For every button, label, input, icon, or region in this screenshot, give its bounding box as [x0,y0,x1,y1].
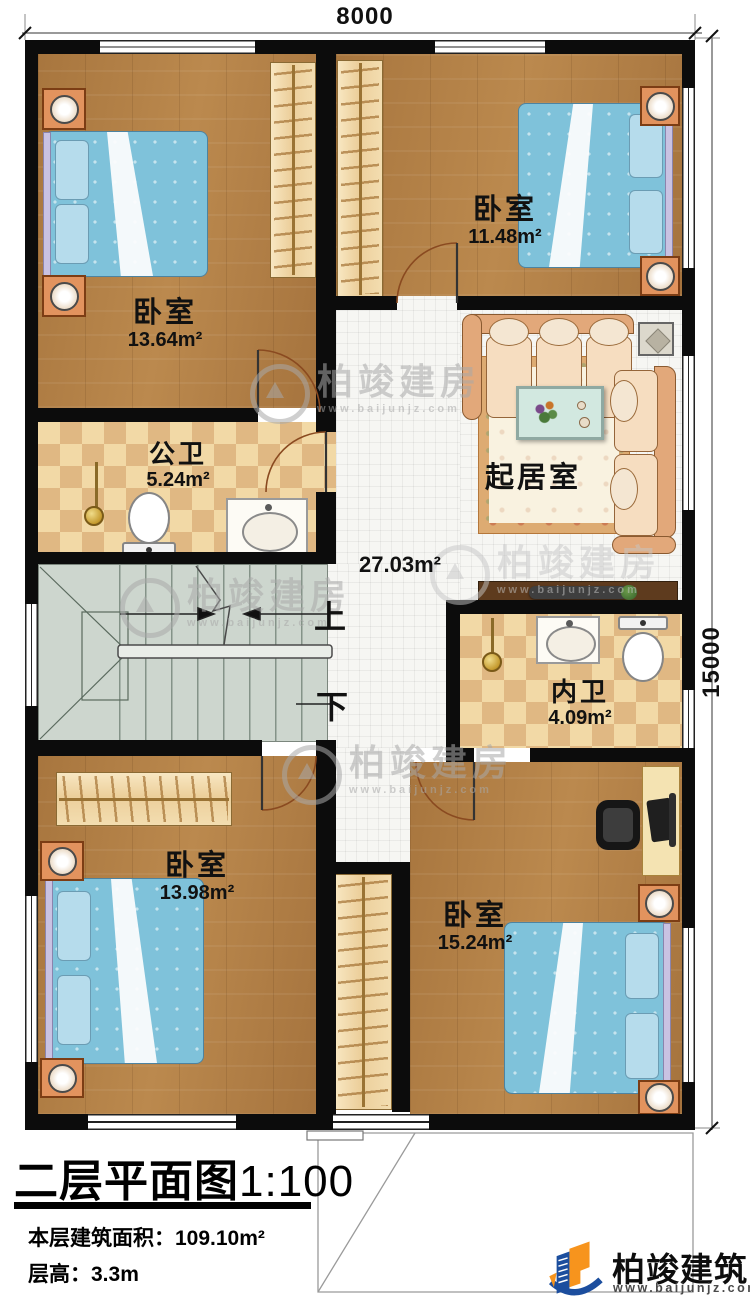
floor-height-label: 层高： [28,1263,91,1286]
nightstand [40,1058,84,1098]
floor-drain-icon [482,652,502,672]
floor-area-value: 109.10m² [175,1227,265,1250]
nightstand [42,88,86,130]
room-label-inner-bathroom: 内卫 4.09m² [490,678,670,730]
cup-icon [579,417,590,428]
lamp-icon [646,92,675,121]
logo-building-orange [569,1241,589,1287]
room-name: 卧室 [75,297,255,329]
window [682,690,695,748]
plan-scale: 1:100 [239,1157,354,1207]
room-label-living-room: 起居室 [443,462,623,494]
bed-headboard [665,104,673,269]
room-area: 13.98m² [107,882,287,904]
window [682,928,695,1082]
nightstand [640,86,680,126]
room-area-living-room: 27.03m² [320,553,480,578]
nightstand [640,256,680,296]
window [333,1114,429,1130]
room-area: 13.64m² [75,329,255,351]
cup-icon [577,401,586,410]
dimension-right: 15000 [698,602,726,722]
wardrobe-top-middle [337,60,383,298]
room-label-public-bathroom: 公卫 5.24m² [88,440,268,492]
bathroom-sink-counter [226,498,308,556]
window [25,604,38,706]
desk-lamp-icon [669,793,676,847]
room-area: 11.48m² [415,226,595,248]
toilet [128,492,170,544]
bathroom-sink-counter [536,616,600,664]
wall-interior [38,408,258,422]
floor-hallway-lower [334,748,410,874]
bed-pillow [57,975,91,1045]
wardrobe-bottom-middle [334,874,392,1110]
wall-interior [336,296,397,310]
sofa-back-pillow [589,318,629,346]
bed-headboard [43,132,51,278]
sofa2-armrest [612,536,676,554]
lamp-icon [48,1064,77,1093]
corner-side-table [638,322,674,356]
wall-interior [460,600,682,614]
wardrobe-bottom-left [56,772,232,826]
wall-interior [446,748,474,762]
room-name: 内卫 [490,678,670,707]
wall-interior [38,740,262,756]
window-sill-mark [307,1131,363,1140]
room-name: 卧室 [385,900,565,932]
room-name: 卧室 [415,194,595,226]
room-area: 27.03m² [320,553,480,578]
wardrobe-top-left [270,62,316,278]
table-inlay [645,328,670,353]
title-block: 二层平面图 1:100 [14,1145,354,1209]
wall-interior [320,408,336,422]
window [435,40,545,54]
bed-headboard [45,879,53,1065]
faucet-icon [566,620,573,627]
wall-interior [38,552,336,564]
nightstand [638,884,680,922]
stair-down-label: 下 [316,682,348,728]
tv-cabinet [478,581,678,602]
tv-icon [529,586,629,599]
bed-pillow [55,204,89,264]
stair-up-label: 上 [314,592,346,638]
bed-sheet [111,879,157,1063]
room-label-bedroom-top-left: 卧室 13.64m² [75,297,255,352]
plan-title: 二层平面图 [14,1145,239,1209]
table-plant-icon [531,397,561,427]
bed-top-left [44,131,208,277]
stair-treads [119,565,327,741]
sofa-back-pillow [539,318,579,346]
window [682,356,695,510]
desk [642,766,680,876]
room-area: 4.09m² [490,707,670,729]
floor-area-line: 本层建筑面积：109.10m² [28,1222,265,1252]
chair-seat [603,808,633,842]
title-underline [14,1202,311,1209]
lamp-icon [48,847,77,876]
dimension-top: 8000 [285,3,445,31]
lamp-icon [645,889,674,918]
room-name: 卧室 [107,850,287,882]
wall-interior [316,740,336,1115]
floor-hallway-upper [336,296,460,564]
bed-pillow [57,891,91,961]
room-area: 5.24m² [88,469,268,491]
room-label-bedroom-top-right: 卧室 11.48m² [415,194,595,249]
flush-button-icon [640,620,646,626]
room-label-bedroom-bottom-left: 卧室 13.98m² [107,850,287,905]
wall-interior [530,748,682,762]
floor-area-label: 本层建筑面积： [28,1227,175,1250]
window [25,896,38,1062]
staircase [38,564,328,742]
room-name: 公卫 [88,440,268,469]
sofa2-back-pillow [610,380,638,422]
window [682,88,695,268]
lamp-icon [645,1083,674,1112]
wall-interior [316,54,336,432]
toilet [622,632,664,682]
bed-pillow [55,140,89,200]
bed-pillow [629,190,663,254]
faucet-icon [265,504,272,511]
nightstand [638,1080,680,1115]
wall-interior [446,600,460,762]
room-area: 15.24m² [385,932,565,954]
room-label-bedroom-bottom-right: 卧室 15.24m² [385,900,565,955]
window [100,40,255,54]
bed-pillow [625,1013,659,1079]
wall-interior [457,296,682,310]
lamp-icon [50,95,79,124]
floor-height-line: 层高：3.3m [28,1258,139,1288]
window [88,1114,236,1130]
desk-chair [596,800,640,850]
sofa-armrest [462,314,482,420]
sink-basin [242,512,298,552]
bed-pillow [625,933,659,999]
brand-website: www.baijunjz.com [613,1281,750,1295]
bed-sheet [107,132,153,276]
floor-plan-sheet: 柏竣建房 www.baijunjz.com 柏竣建房 www.baijunjz.… [0,0,750,1307]
floor-height-value: 3.3m [91,1263,139,1286]
toilet-tank [618,616,668,630]
floor-drain-icon [84,506,104,526]
bed-bottom-left [46,878,204,1064]
plant-icon [621,585,637,600]
bed-headboard [663,923,671,1095]
lamp-icon [646,262,675,291]
nightstand [40,841,84,881]
brand-logo-icon [542,1236,606,1300]
sink-basin [546,626,596,662]
sofa-back-pillow [489,318,529,346]
room-name: 起居室 [443,462,623,494]
wall-interior [334,862,392,874]
coffee-table [516,386,604,440]
